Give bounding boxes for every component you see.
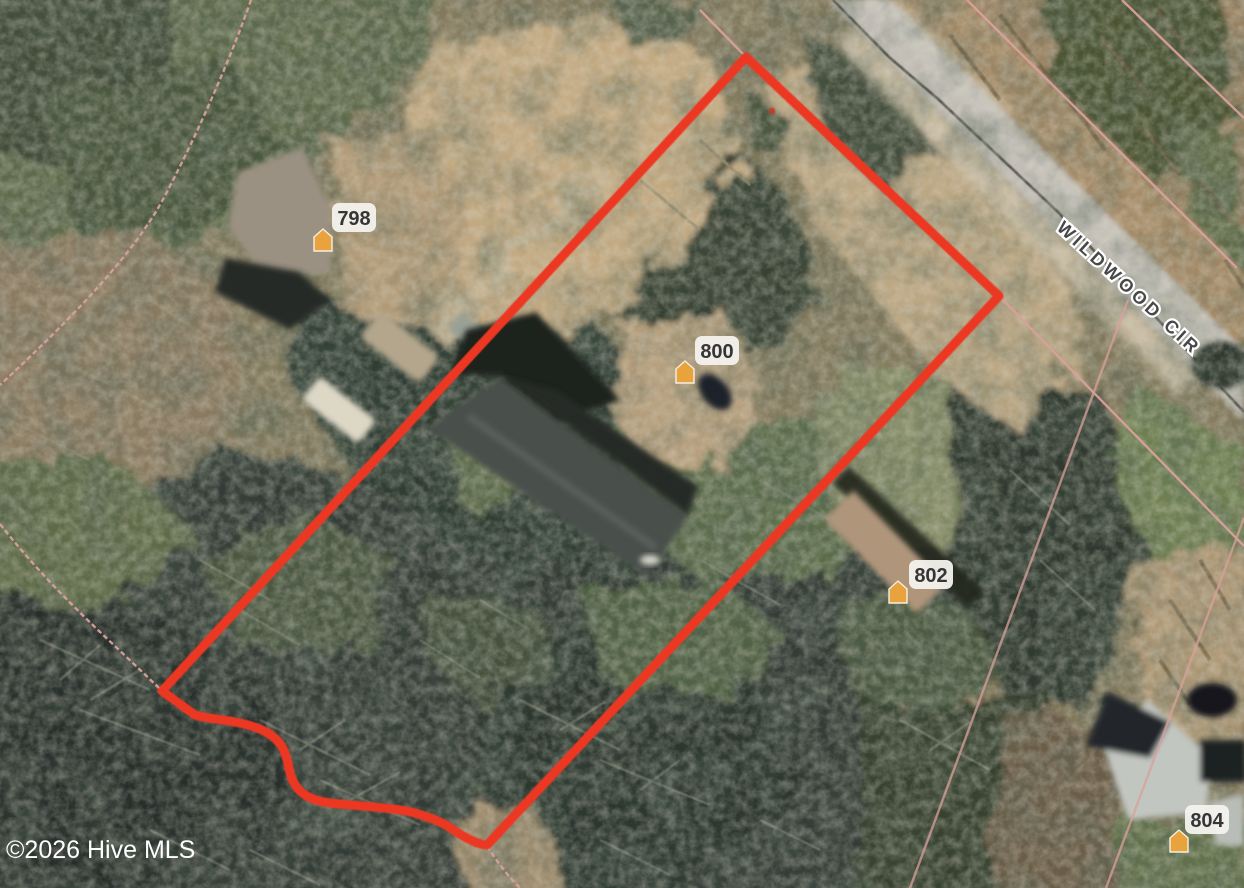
svg-text:802: 802 (914, 565, 947, 587)
svg-text:804: 804 (1190, 810, 1224, 832)
svg-text:800: 800 (700, 341, 733, 363)
svg-text:©2026 Hive MLS: ©2026 Hive MLS (6, 836, 195, 864)
svg-text:798: 798 (337, 208, 370, 230)
